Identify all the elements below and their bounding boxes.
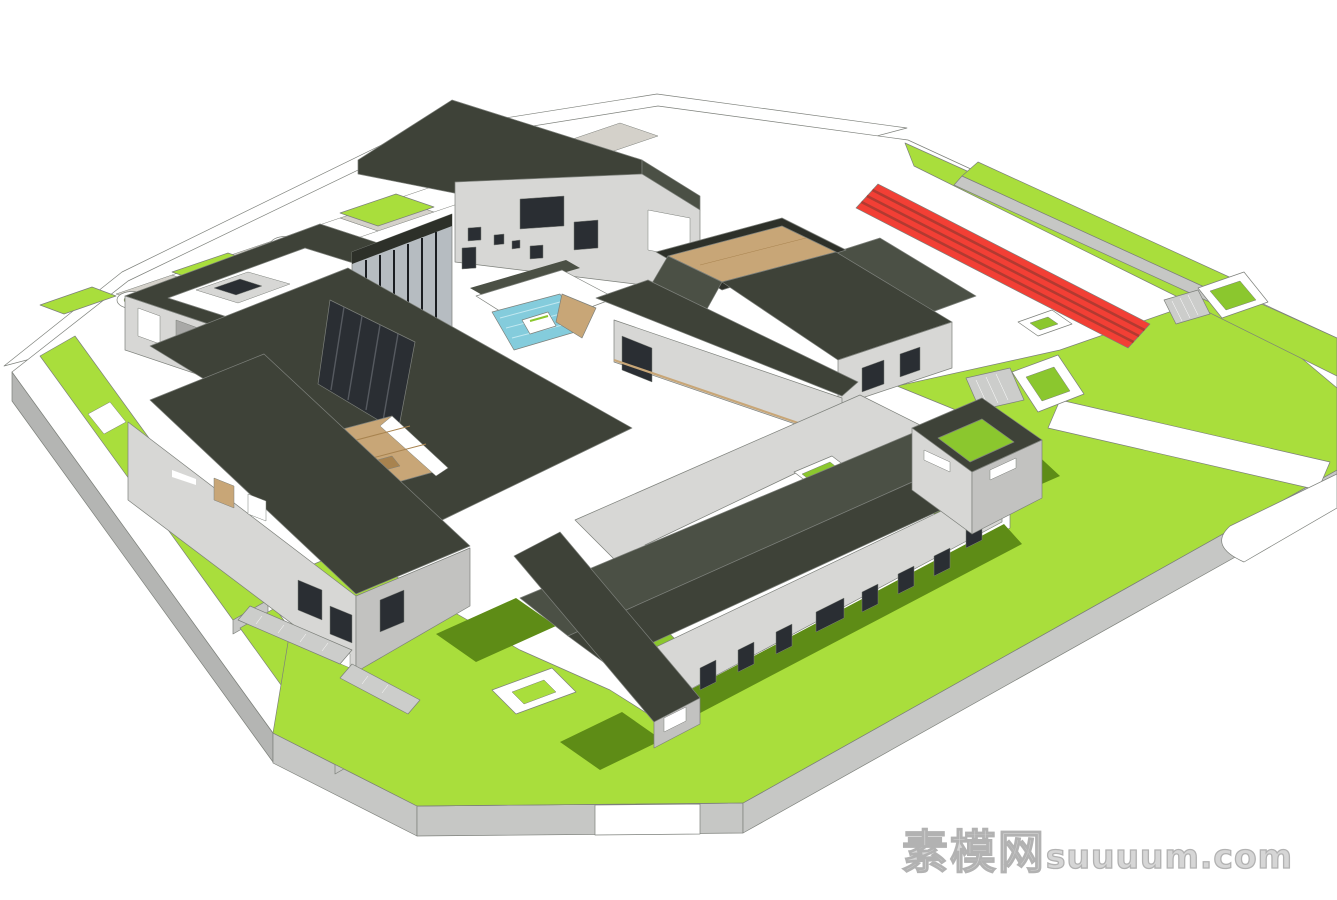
watermark: 素模网suuuum.com bbox=[902, 816, 1293, 882]
watermark-latin-text: suuuum.com bbox=[1046, 837, 1293, 876]
site-model-canvas bbox=[0, 0, 1337, 900]
plate-side-bottom-gap bbox=[595, 804, 700, 835]
architectural-model-render: 素模网suuuum.com bbox=[0, 0, 1337, 900]
watermark-cn-text: 素模网 bbox=[902, 825, 1046, 879]
